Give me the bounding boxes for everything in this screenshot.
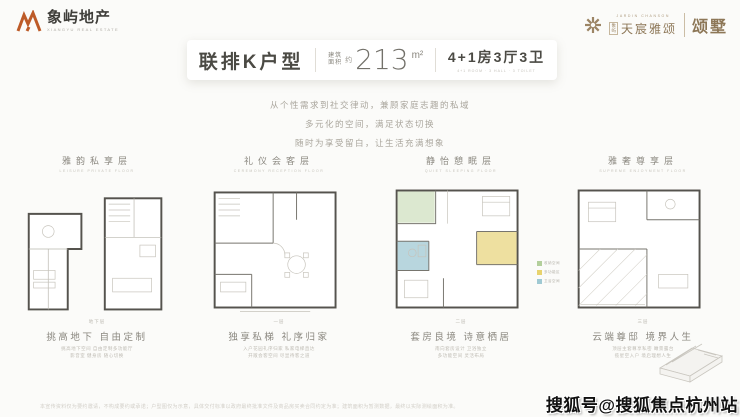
floor-plan-drawing-second bbox=[374, 179, 548, 319]
plan-label-en: CEREMONY RECEPTION FLOOR bbox=[192, 169, 366, 173]
legend-swatch-cyan bbox=[537, 279, 542, 284]
floor-tag: 地下层 bbox=[10, 319, 184, 325]
brand-text: 象屿地产 XIANGYU REAL ESTATE bbox=[47, 10, 119, 32]
plan-label: 静怡憩眠层 bbox=[374, 154, 548, 167]
sohu-watermark: 搜狐号@搜狐焦点杭州站 bbox=[546, 391, 738, 416]
floor-plans-row: 雅韵私享层 LEISURE PRIVATE FLOOR bbox=[10, 154, 730, 359]
plan-label-en: SUPREME ENJOYMENT FLOOR bbox=[556, 169, 730, 173]
project-suffix: 颂墅 bbox=[692, 13, 728, 37]
floor-tag: 二层 bbox=[374, 319, 548, 325]
divider bbox=[315, 48, 316, 72]
floor-plan-drawing-first bbox=[192, 179, 366, 319]
floor-plan-drawing-basement bbox=[10, 179, 184, 319]
legend-label: 多功能区 bbox=[544, 270, 560, 275]
rooms-label: 4+1房3厅3卫 bbox=[448, 47, 545, 67]
project-prefix: 象屿 bbox=[609, 22, 618, 35]
area-label-line1: 建筑 bbox=[328, 53, 342, 60]
room-color-legend: 收纳空间 多功能区 卫浴空间 bbox=[537, 261, 560, 284]
plan-caption: 独享私梯 礼序归家 bbox=[192, 329, 366, 343]
floor-tag: 一层 bbox=[192, 319, 366, 325]
floor-plan-basement: 雅韵私享层 LEISURE PRIVATE FLOOR bbox=[10, 154, 184, 359]
legend-item: 收纳空间 bbox=[537, 261, 560, 266]
plan-note: 挑高地下空间 自由定制多功能厅影音室 健身房 随心切换 bbox=[10, 346, 184, 359]
legend-item: 多功能区 bbox=[537, 270, 560, 275]
legend-swatch-yellow bbox=[537, 270, 542, 275]
area-info: 建筑 面积 约 213 m² bbox=[328, 46, 423, 74]
plan-note: 入户花园礼序归家 私家电梯直达开敞会客空间 尽显待客之道 bbox=[192, 346, 366, 359]
unit-title-card: 联排K户型 建筑 面积 约 213 m² 4+1房3厅3卫 4+1 ROOM ·… bbox=[187, 40, 557, 80]
legend-label: 收纳空间 bbox=[544, 261, 560, 266]
area-label-line2: 面积 bbox=[328, 60, 342, 67]
plan-note: 南向套房设计 卫浴独立多功能空间 灵活布局 bbox=[374, 346, 548, 359]
floor-plan-second: 静怡憩眠层 QUIET SLEEPING FLOOR bbox=[374, 154, 548, 359]
project-name: 天宸雅颂 bbox=[621, 20, 677, 37]
legal-disclaimer: 本宣传资料仅为要约邀请，不构成要约或承诺；户型图仅为示意，具体交付标准以政府最终… bbox=[40, 403, 600, 410]
floor-tag: 三层 bbox=[556, 319, 730, 325]
intro-line-2: 多元化的空间，满足状态切换 bbox=[0, 118, 740, 130]
project-name-en: JARDIN CHANSON bbox=[609, 14, 677, 18]
unit-type-label: 联排K户型 bbox=[199, 47, 304, 74]
project-name-block: JARDIN CHANSON 象屿 天宸雅颂 bbox=[609, 14, 677, 37]
intro-line-3: 随时为享受留白，让生活充满想象 bbox=[0, 137, 740, 149]
area-unit: m² bbox=[412, 50, 424, 61]
legend-label: 卫浴空间 bbox=[544, 279, 560, 284]
plan-label: 雅韵私享层 bbox=[10, 154, 184, 167]
legend-item: 卫浴空间 bbox=[537, 279, 560, 284]
brand-logo-left: 象屿地产 XIANGYU REAL ESTATE bbox=[16, 10, 119, 34]
plan-label: 雅奢尊享层 bbox=[556, 154, 730, 167]
plan-label-en: LEISURE PRIVATE FLOOR bbox=[10, 169, 184, 173]
xiangyu-logo-icon bbox=[16, 10, 42, 34]
area-approx: 约 bbox=[345, 55, 352, 65]
plan-caption: 套房良境 诗意栖居 bbox=[374, 329, 548, 343]
area-value: 213 bbox=[355, 46, 408, 74]
building-axonometric-sketch bbox=[652, 334, 728, 389]
flower-icon bbox=[584, 16, 602, 34]
plan-caption: 挑高地下 自由定制 bbox=[10, 329, 184, 343]
intro-line-1: 从个性需求到社交律动，兼顾家庭志趣的私域 bbox=[0, 99, 740, 111]
page: 象屿地产 XIANGYU REAL ESTATE JARDIN CHANSON … bbox=[0, 0, 740, 417]
floor-plan-third: 雅奢尊享层 SUPREME ENJOYMENT FLOOR bbox=[556, 154, 730, 359]
brand-name-en: XIANGYU REAL ESTATE bbox=[47, 27, 119, 32]
highlight-multi-room bbox=[477, 231, 517, 264]
plan-label: 礼仪会客层 bbox=[192, 154, 366, 167]
project-logo-right: JARDIN CHANSON 象屿 天宸雅颂 颂墅 bbox=[584, 13, 728, 37]
divider bbox=[435, 48, 436, 72]
legend-swatch-green bbox=[537, 261, 542, 266]
floor-plan-drawing-third bbox=[556, 179, 730, 319]
intro-paragraph: 从个性需求到社交律动，兼顾家庭志趣的私域 多元化的空间，满足状态切换 随时为享受… bbox=[0, 99, 740, 156]
highlight-storage-room bbox=[398, 191, 435, 222]
brand-name: 象屿地产 bbox=[47, 10, 119, 26]
logo-divider bbox=[684, 13, 685, 37]
floor-plan-first: 礼仪会客层 CEREMONY RECEPTION FLOOR bbox=[192, 154, 366, 359]
rooms-label-en: 4+1 ROOM · 3 HALL · 3 TOILET bbox=[457, 69, 536, 73]
rooms-info: 4+1房3厅3卫 4+1 ROOM · 3 HALL · 3 TOILET bbox=[448, 47, 545, 73]
plan-label-en: QUIET SLEEPING FLOOR bbox=[374, 169, 548, 173]
highlight-bath-room bbox=[398, 241, 429, 270]
